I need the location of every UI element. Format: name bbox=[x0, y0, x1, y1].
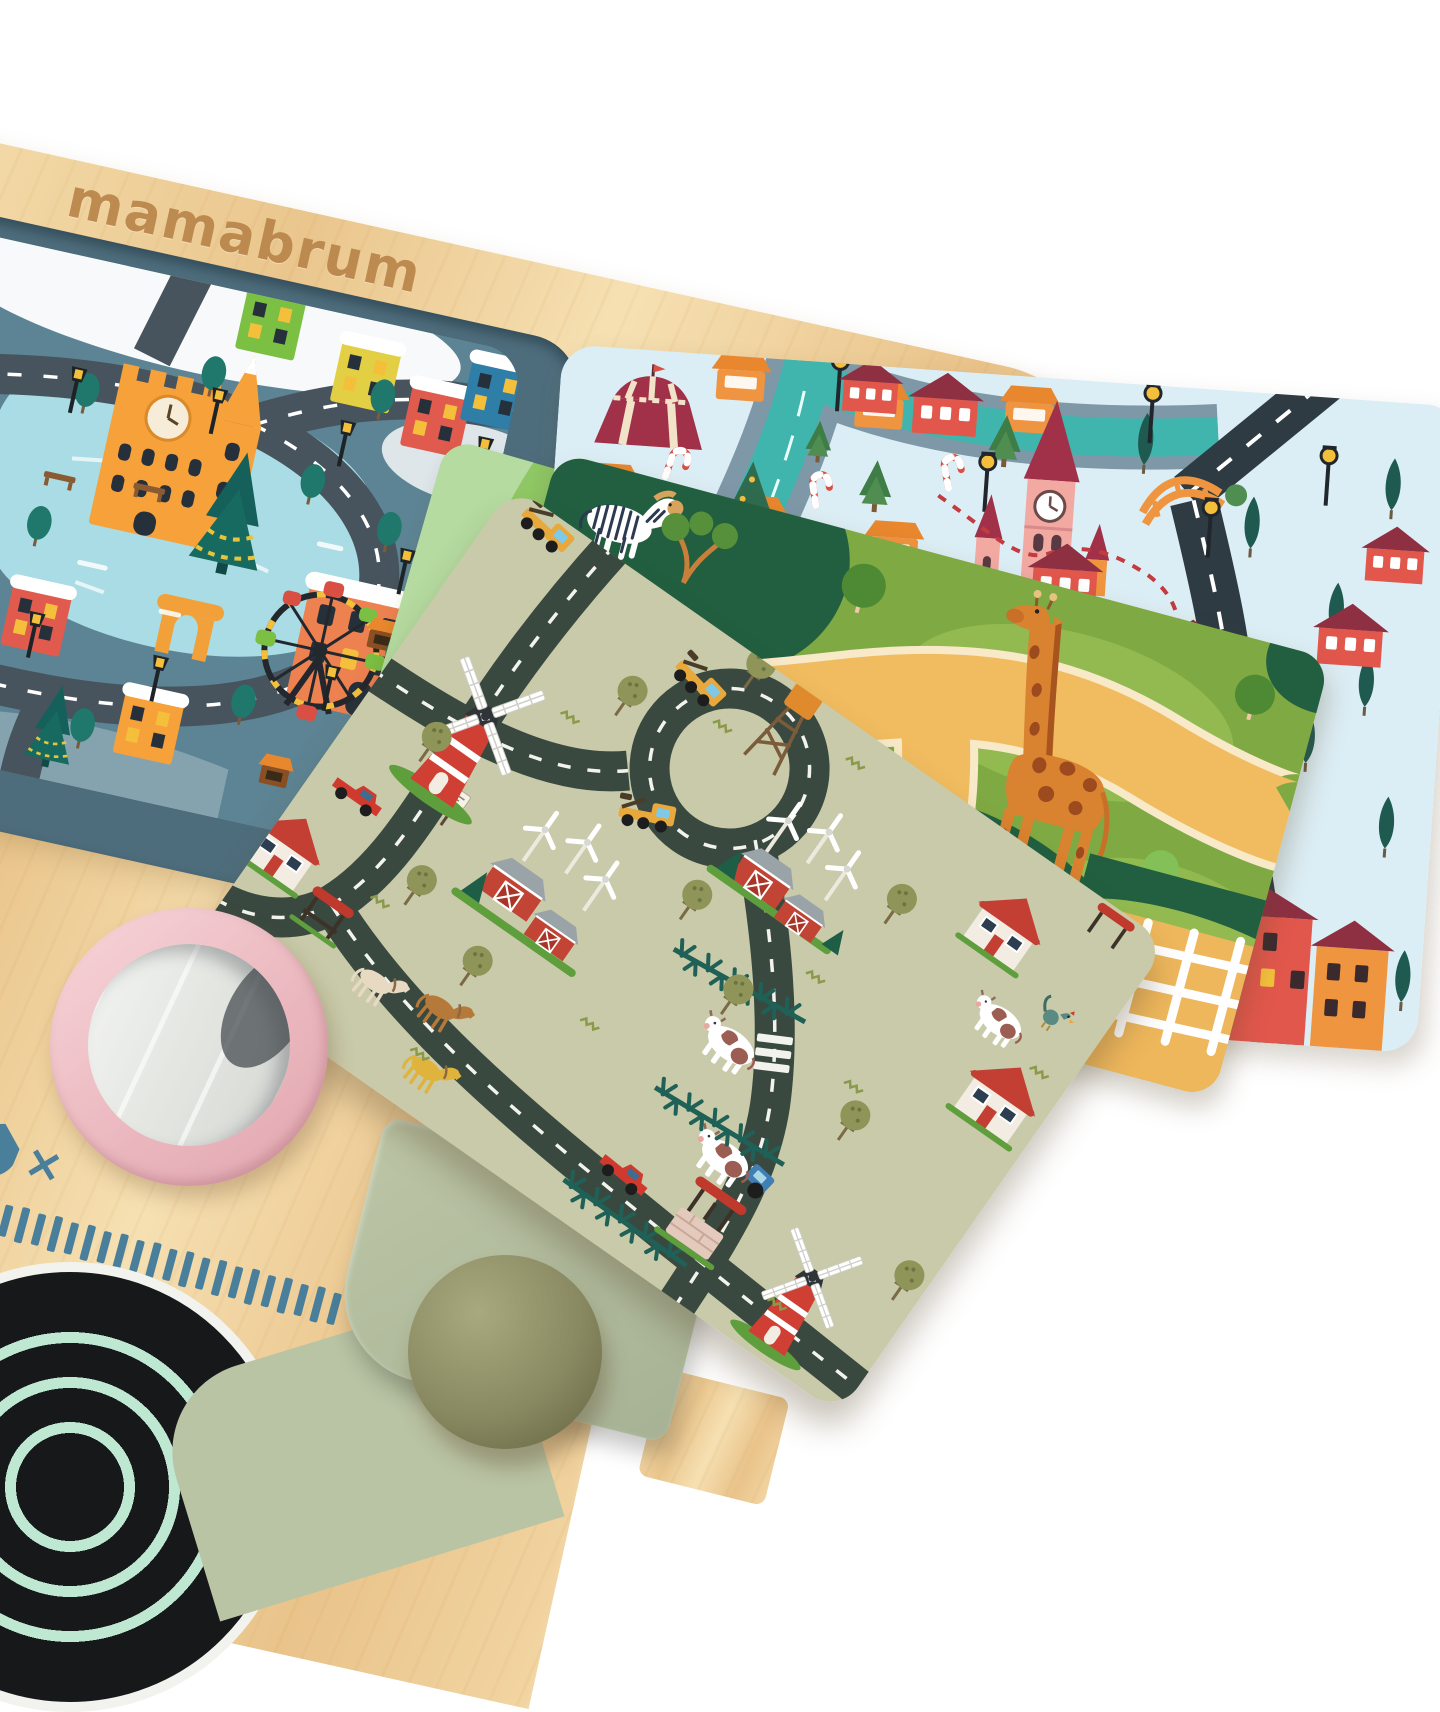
times-icon: × bbox=[20, 1136, 69, 1190]
zebra-crossing bbox=[753, 1033, 793, 1073]
mirror-reflection bbox=[202, 944, 290, 1084]
mirror-face bbox=[88, 944, 290, 1146]
wooden-knob bbox=[408, 1255, 602, 1449]
pink-mirror bbox=[50, 908, 328, 1186]
